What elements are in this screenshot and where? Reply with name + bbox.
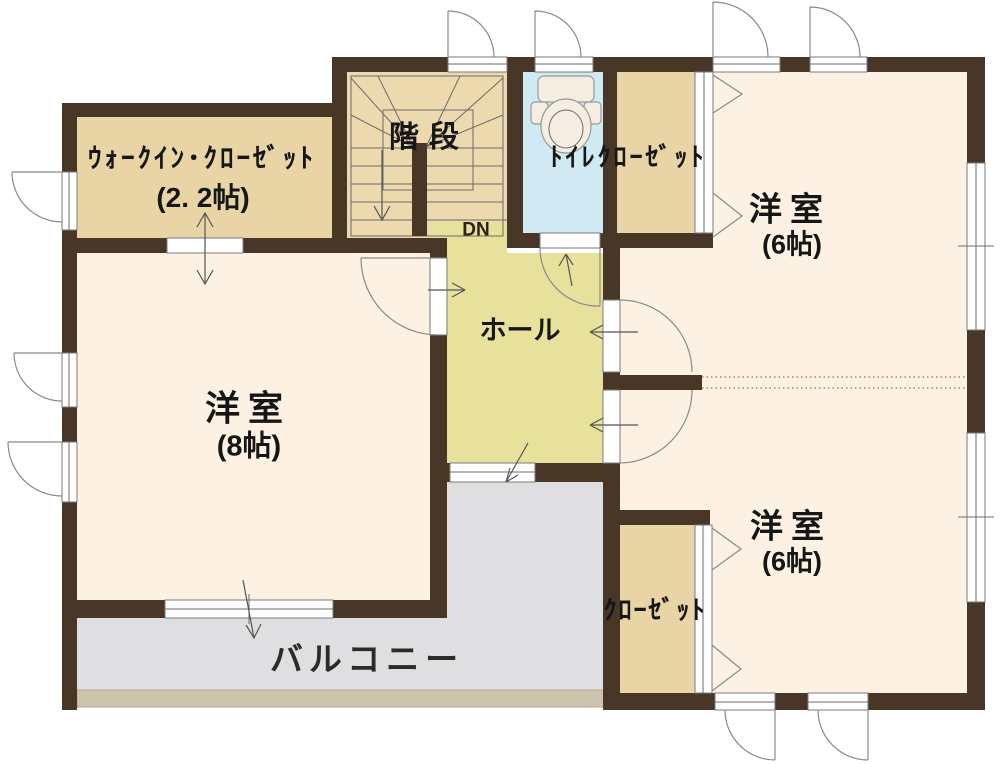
closet-label: ｸﾛｰｾﾞｯﾄ [603,597,706,623]
walk-in-closet-label: ｳｫｰｸｲﾝ･ｸﾛｰｾﾞｯﾄ [88,146,316,173]
hall-floor [447,253,603,463]
door-hinged [540,233,600,248]
wall [617,693,715,710]
room-left-label: 洋室 [205,392,291,427]
room-top-right-label: 洋室 [749,193,831,226]
balcony-edge [77,690,612,707]
wall [333,600,430,618]
room-top-right-size: (6帖) [762,232,822,259]
toilet-closet-label: ﾄｲﾚｸﾛｰｾﾞｯﾄ [549,144,706,170]
wall [62,103,77,172]
wall [507,57,523,248]
wall [775,693,808,710]
wall [617,510,710,525]
wall [603,372,620,390]
door-hinged [603,300,620,372]
room-left-size: (8帖) [217,433,281,462]
wall [62,600,165,618]
floor-plan-drawing [0,0,1000,764]
wall [430,238,447,258]
wall [332,57,448,72]
wall [603,248,620,300]
hall-label: ホール [480,318,561,345]
wall [332,57,347,253]
wall [62,407,77,442]
balcony-label: バルコニー [270,643,464,676]
wall [62,230,77,353]
floor-plan: ｳｫｰｸｲﾝ･ｸﾛｰｾﾞｯﾄ (2. 2帖) 階段 DN ﾄｲﾚｸﾛｰｾﾞｯﾄ … [0,0,1000,764]
wall [780,57,810,72]
wall [62,103,347,117]
stair-divider-wall [412,143,427,236]
door-hinged [603,390,620,463]
wall [62,502,77,710]
wall [603,463,620,710]
wall [967,602,985,710]
room-bottom-right-size: (6帖) [762,549,822,576]
down-label: DN [462,221,489,240]
stairs-label: 階段 [389,123,469,153]
balcony-notch-floor [447,482,612,618]
wall [62,238,167,253]
door-hinged [430,258,447,335]
wall [967,330,985,433]
wall [967,57,985,163]
walk-in-closet-size: (2. 2帖) [156,184,249,212]
wall [430,335,447,618]
room-bottom-right-label: 洋室 [750,510,832,543]
toilet-tank [538,76,594,102]
